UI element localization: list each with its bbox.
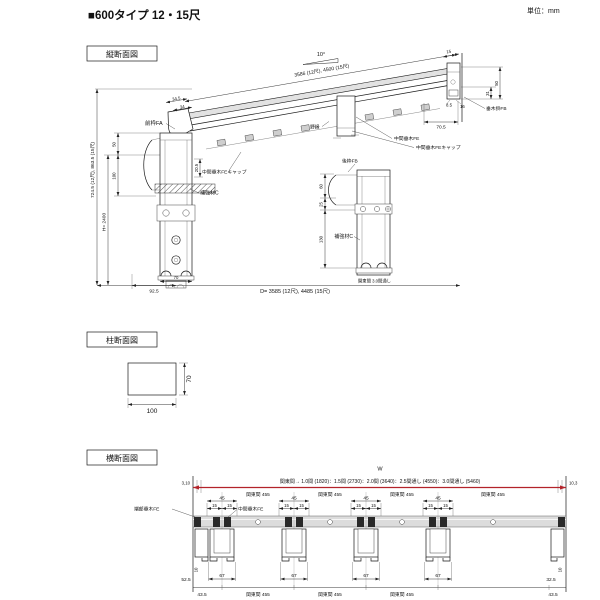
svg-text:45: 45 — [219, 496, 225, 502]
cap-left-label: 中間垂木FEキャップ — [202, 169, 247, 176]
rafter-assembly: 45 15 15 67 — [207, 492, 237, 587]
svg-text:15: 15 — [356, 503, 361, 508]
horizontal-section: W 関東間→ 1.0間 (1820)：1.5間 (2730)：2.0間 (364… — [134, 467, 578, 599]
mid-rafter-label-h: 中間垂木FE — [238, 506, 263, 513]
svg-text:15: 15 — [443, 503, 448, 508]
dim-16: 16 — [460, 104, 465, 109]
reinforcement-front-label: 補強材C — [200, 190, 219, 197]
dim-92-5: 92.5 — [149, 289, 159, 295]
dim-50-right: 50 — [494, 81, 499, 86]
mid-rafter-label: 中間垂木FE — [394, 135, 419, 142]
svg-text:横断面図: 横断面図 — [106, 453, 138, 463]
vertical-section-label: 縦断面図 — [87, 46, 157, 61]
kanto-note: 関東間 3.0間通し — [358, 278, 391, 285]
svg-text:15: 15 — [212, 503, 217, 508]
dim-100: 100 — [112, 172, 117, 180]
edge-rafter-left: 10 52.5 43.5 — [181, 517, 208, 598]
dim-34: 34 — [179, 104, 185, 110]
beam-bolt — [328, 520, 333, 525]
dim-10-right: 10 — [558, 567, 563, 572]
dim-depth: D= 3585 (12尺), 4485 (15尺) — [260, 288, 330, 295]
bay-dim-top-2: 関東間 455 — [318, 491, 342, 498]
reinforcement-rear-label: 補強材C — [334, 233, 353, 240]
dim-8-5: 8.5 — [446, 103, 453, 108]
svg-text:15: 15 — [299, 503, 304, 508]
hanger-label: 垂木掛FB — [486, 105, 507, 112]
edge-rafter-label: 端部垂木FE — [134, 506, 159, 513]
dim-43-5-left: 43.5 — [197, 592, 207, 598]
dim-50-left: 50 — [112, 142, 117, 147]
bay-dim-bottom-3: 関東間 455 — [390, 591, 414, 598]
svg-text:柱断面図: 柱断面図 — [106, 335, 138, 345]
svg-text:67: 67 — [219, 573, 225, 579]
svg-text:67: 67 — [291, 573, 297, 579]
dim-32-5-right: 32.5 — [546, 577, 556, 583]
catalog-drawing-page: ■600タイプ 12・15尺 単位：mm 縦断面図 柱断面図 横断面図 3586… — [0, 0, 600, 600]
svg-text:45: 45 — [363, 496, 369, 502]
rear-frame-label: 後枠FB — [342, 158, 358, 165]
drawing-canvas: ■600タイプ 12・15尺 単位：mm 縦断面図 柱断面図 横断面図 3586… — [0, 0, 600, 600]
svg-text:45: 45 — [291, 496, 297, 502]
beam-bolt — [491, 520, 496, 525]
horizontal-section-label: 横断面図 — [87, 450, 157, 465]
front-frame-profile — [168, 109, 193, 137]
dim-left-edge-offsets: 3,10 — [182, 481, 191, 486]
unit-note: 単位：mm — [527, 6, 560, 15]
svg-text:15: 15 — [227, 503, 232, 508]
bay-dim-bottom-1: 関東間 455 — [246, 591, 270, 598]
rafter-assembly: 45 15 15 67 — [423, 492, 453, 587]
column-section-label: 柱断面図 — [87, 332, 157, 347]
dim-52-5-left: 52.5 — [181, 577, 191, 583]
dim-31: 31 — [485, 91, 490, 96]
dim-60: 60 — [319, 184, 324, 189]
roof-angle: 10° — [317, 52, 325, 58]
column-width: 100 — [147, 408, 158, 415]
svg-text:45: 45 — [435, 496, 441, 502]
width-symbol: W — [377, 467, 383, 473]
nobuchi-label: 野縁 — [310, 124, 320, 131]
front-post — [144, 133, 215, 288]
dim-15-top: 15 — [446, 49, 452, 55]
svg-text:15: 15 — [428, 503, 433, 508]
bay-dim-top-1: 関東間 455 — [246, 491, 270, 498]
column-section: 100 70 — [128, 363, 193, 415]
front-frame-label: 前枠FA — [145, 119, 163, 127]
column-height: 70 — [186, 375, 193, 383]
angle-wedge — [303, 59, 338, 65]
dim-43-5-right: 43.5 — [548, 592, 558, 598]
cap-right-label: 中間垂木FEキャップ — [416, 144, 461, 151]
hanger-profile — [447, 63, 460, 99]
svg-text:15: 15 — [284, 503, 289, 508]
bay-dim-top-4: 関東間 455 — [481, 491, 505, 498]
vertical-section: 3586 (12尺), 4500 (15尺) 10° 34.5 34 前枠FA … — [90, 49, 507, 295]
dim-total-height: 724.5 (12尺), 863.5 (15尺) — [90, 142, 96, 198]
dim-10-left: 10 — [194, 567, 199, 572]
dim-70-5: 70.5 — [436, 125, 446, 131]
column-profile — [128, 363, 176, 395]
svg-text:縦断面図: 縦断面図 — [106, 49, 138, 59]
dim-70-base: 70 — [174, 275, 179, 280]
svg-text:67: 67 — [435, 573, 441, 579]
page-title: ■600タイプ 12・15尺 — [88, 8, 201, 22]
beam-bolt — [256, 520, 261, 525]
svg-text:15: 15 — [371, 503, 376, 508]
dim-130: 130 — [319, 235, 324, 243]
dim-25: 25 — [319, 202, 324, 207]
front-beam — [193, 516, 566, 527]
dim-post-height: H= 2400 — [102, 213, 108, 232]
svg-text:67: 67 — [363, 573, 369, 579]
dim-right-edge-offsets: 10,3 — [569, 481, 578, 486]
rafter-assembly: 45 15 15 67 — [351, 492, 381, 587]
width-span-options: 関東間→ 1.0間 (1820)：1.5間 (2730)：2.0間 (3640)… — [280, 478, 481, 485]
bay-dim-top-3: 関東間 455 — [390, 491, 414, 498]
beam-bolt — [400, 520, 405, 525]
dim-slope-length: 3586 (12尺), 4500 (15尺) — [294, 63, 350, 78]
bay-dim-bottom-2: 関東間 455 — [318, 591, 342, 598]
rafter-assembly: 45 15 15 67 — [279, 492, 309, 587]
roof-panel — [183, 67, 459, 120]
rear-post — [329, 170, 393, 275]
dim-34-5: 34.5 — [172, 95, 182, 101]
dim-20-5: 20.5 — [194, 163, 199, 172]
